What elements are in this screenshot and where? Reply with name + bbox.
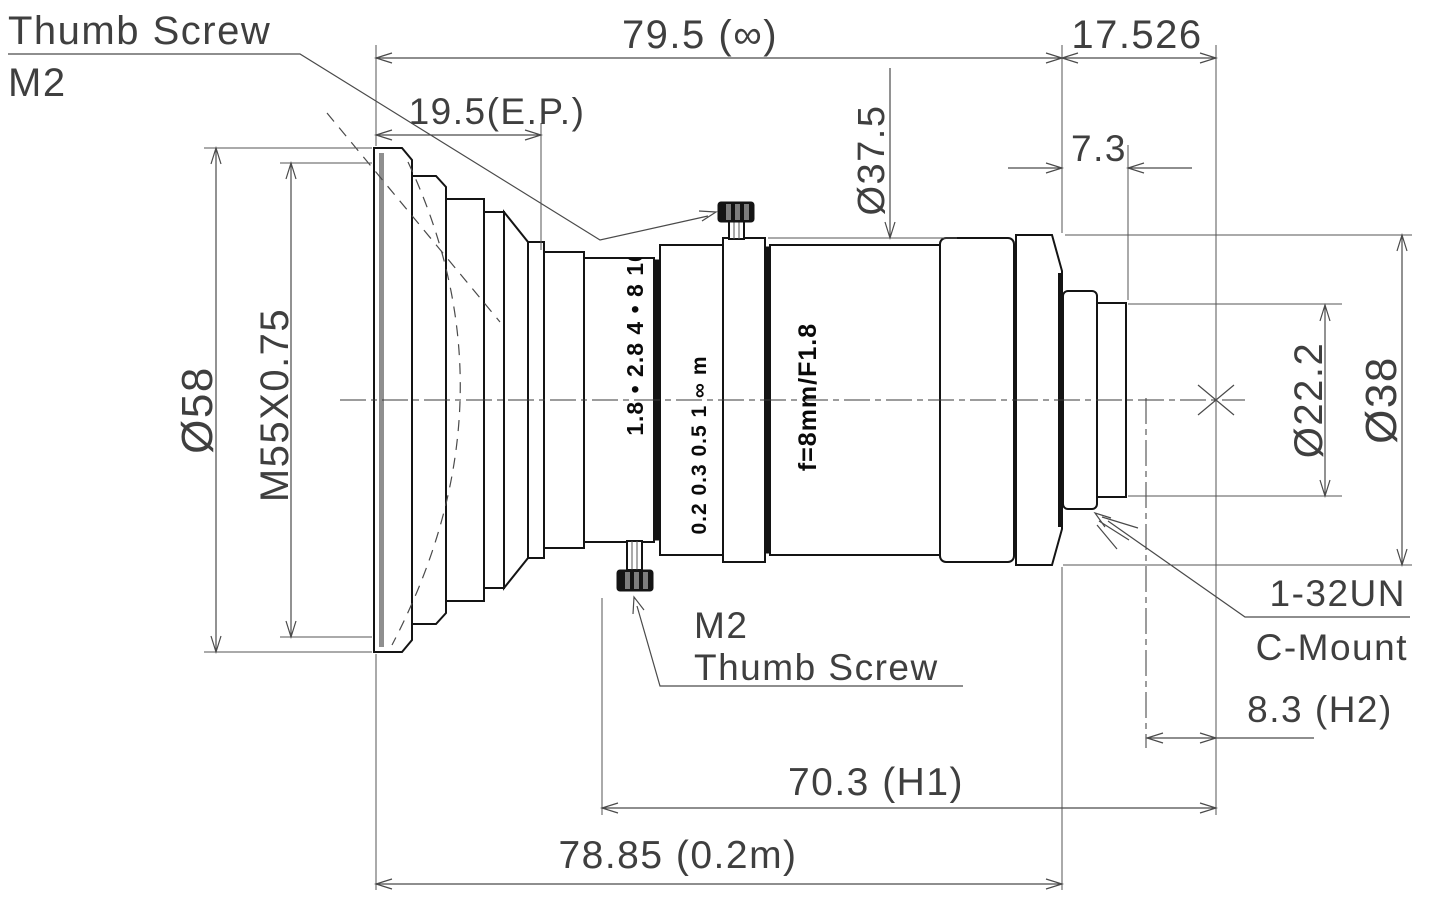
dim-barrel-diameter: Ø37.5: [851, 104, 893, 215]
dim-overall-near: 78.85 (0.2m): [558, 834, 797, 877]
dim-h1: 70.3 (H1): [788, 761, 964, 804]
label-mount-thread: 1-32UN: [1270, 573, 1407, 614]
callout-thumb-screw-bottom-line2: Thumb Screw: [694, 647, 939, 688]
thread-hatch: [1097, 517, 1138, 549]
dim-flange-focal: 17.526: [1071, 13, 1202, 57]
callout-thumb-screw-bottom-line1: M2: [694, 605, 748, 646]
dim-front-diameter: Ø58: [173, 366, 222, 454]
label-mount-type: C-Mount: [1256, 627, 1408, 668]
thumb-screw-bottom-stem: [627, 541, 642, 570]
dim-rear-protrusion: 7.3: [1071, 128, 1127, 169]
callout-thumb-screw-top-line1: Thumb Screw: [8, 9, 271, 53]
marking-aperture-scale: 1.8 • 2.8 4 • 8 16: [622, 248, 648, 436]
lens-technical-drawing: Thumb Screw M2 79.5 (∞) 17.526 19.5(E.P.…: [0, 0, 1445, 918]
thumb-screw-bottom: [617, 541, 653, 591]
thumb-screw-top-stem: [729, 221, 744, 239]
dim-filter-thread: M55X0.75: [253, 308, 297, 502]
annotation-text: Thumb Screw M2 79.5 (∞) 17.526 19.5(E.P.…: [8, 9, 1408, 877]
dim-rear-diameter: Ø38: [1357, 356, 1406, 444]
drawing-canvas: Thumb Screw M2 79.5 (∞) 17.526 19.5(E.P.…: [0, 0, 1445, 918]
marking-lens-spec: f=8mm/F1.8: [794, 323, 822, 471]
marking-focus-scale: 0.2 0.3 0.5 1 ∞ m: [688, 355, 711, 534]
callout-thumb-screw-top-line2: M2: [8, 61, 67, 105]
dim-entrance-pupil: 19.5(E.P.): [409, 91, 586, 132]
leader-thumb-screw-top: [8, 54, 708, 240]
dim-mount-stub-diameter: Ø22.2: [1287, 342, 1331, 458]
thumb-screw-top: [718, 202, 754, 239]
dim-h2: 8.3 (H2): [1247, 689, 1393, 730]
dim-overall-infinity: 79.5 (∞): [622, 13, 778, 57]
